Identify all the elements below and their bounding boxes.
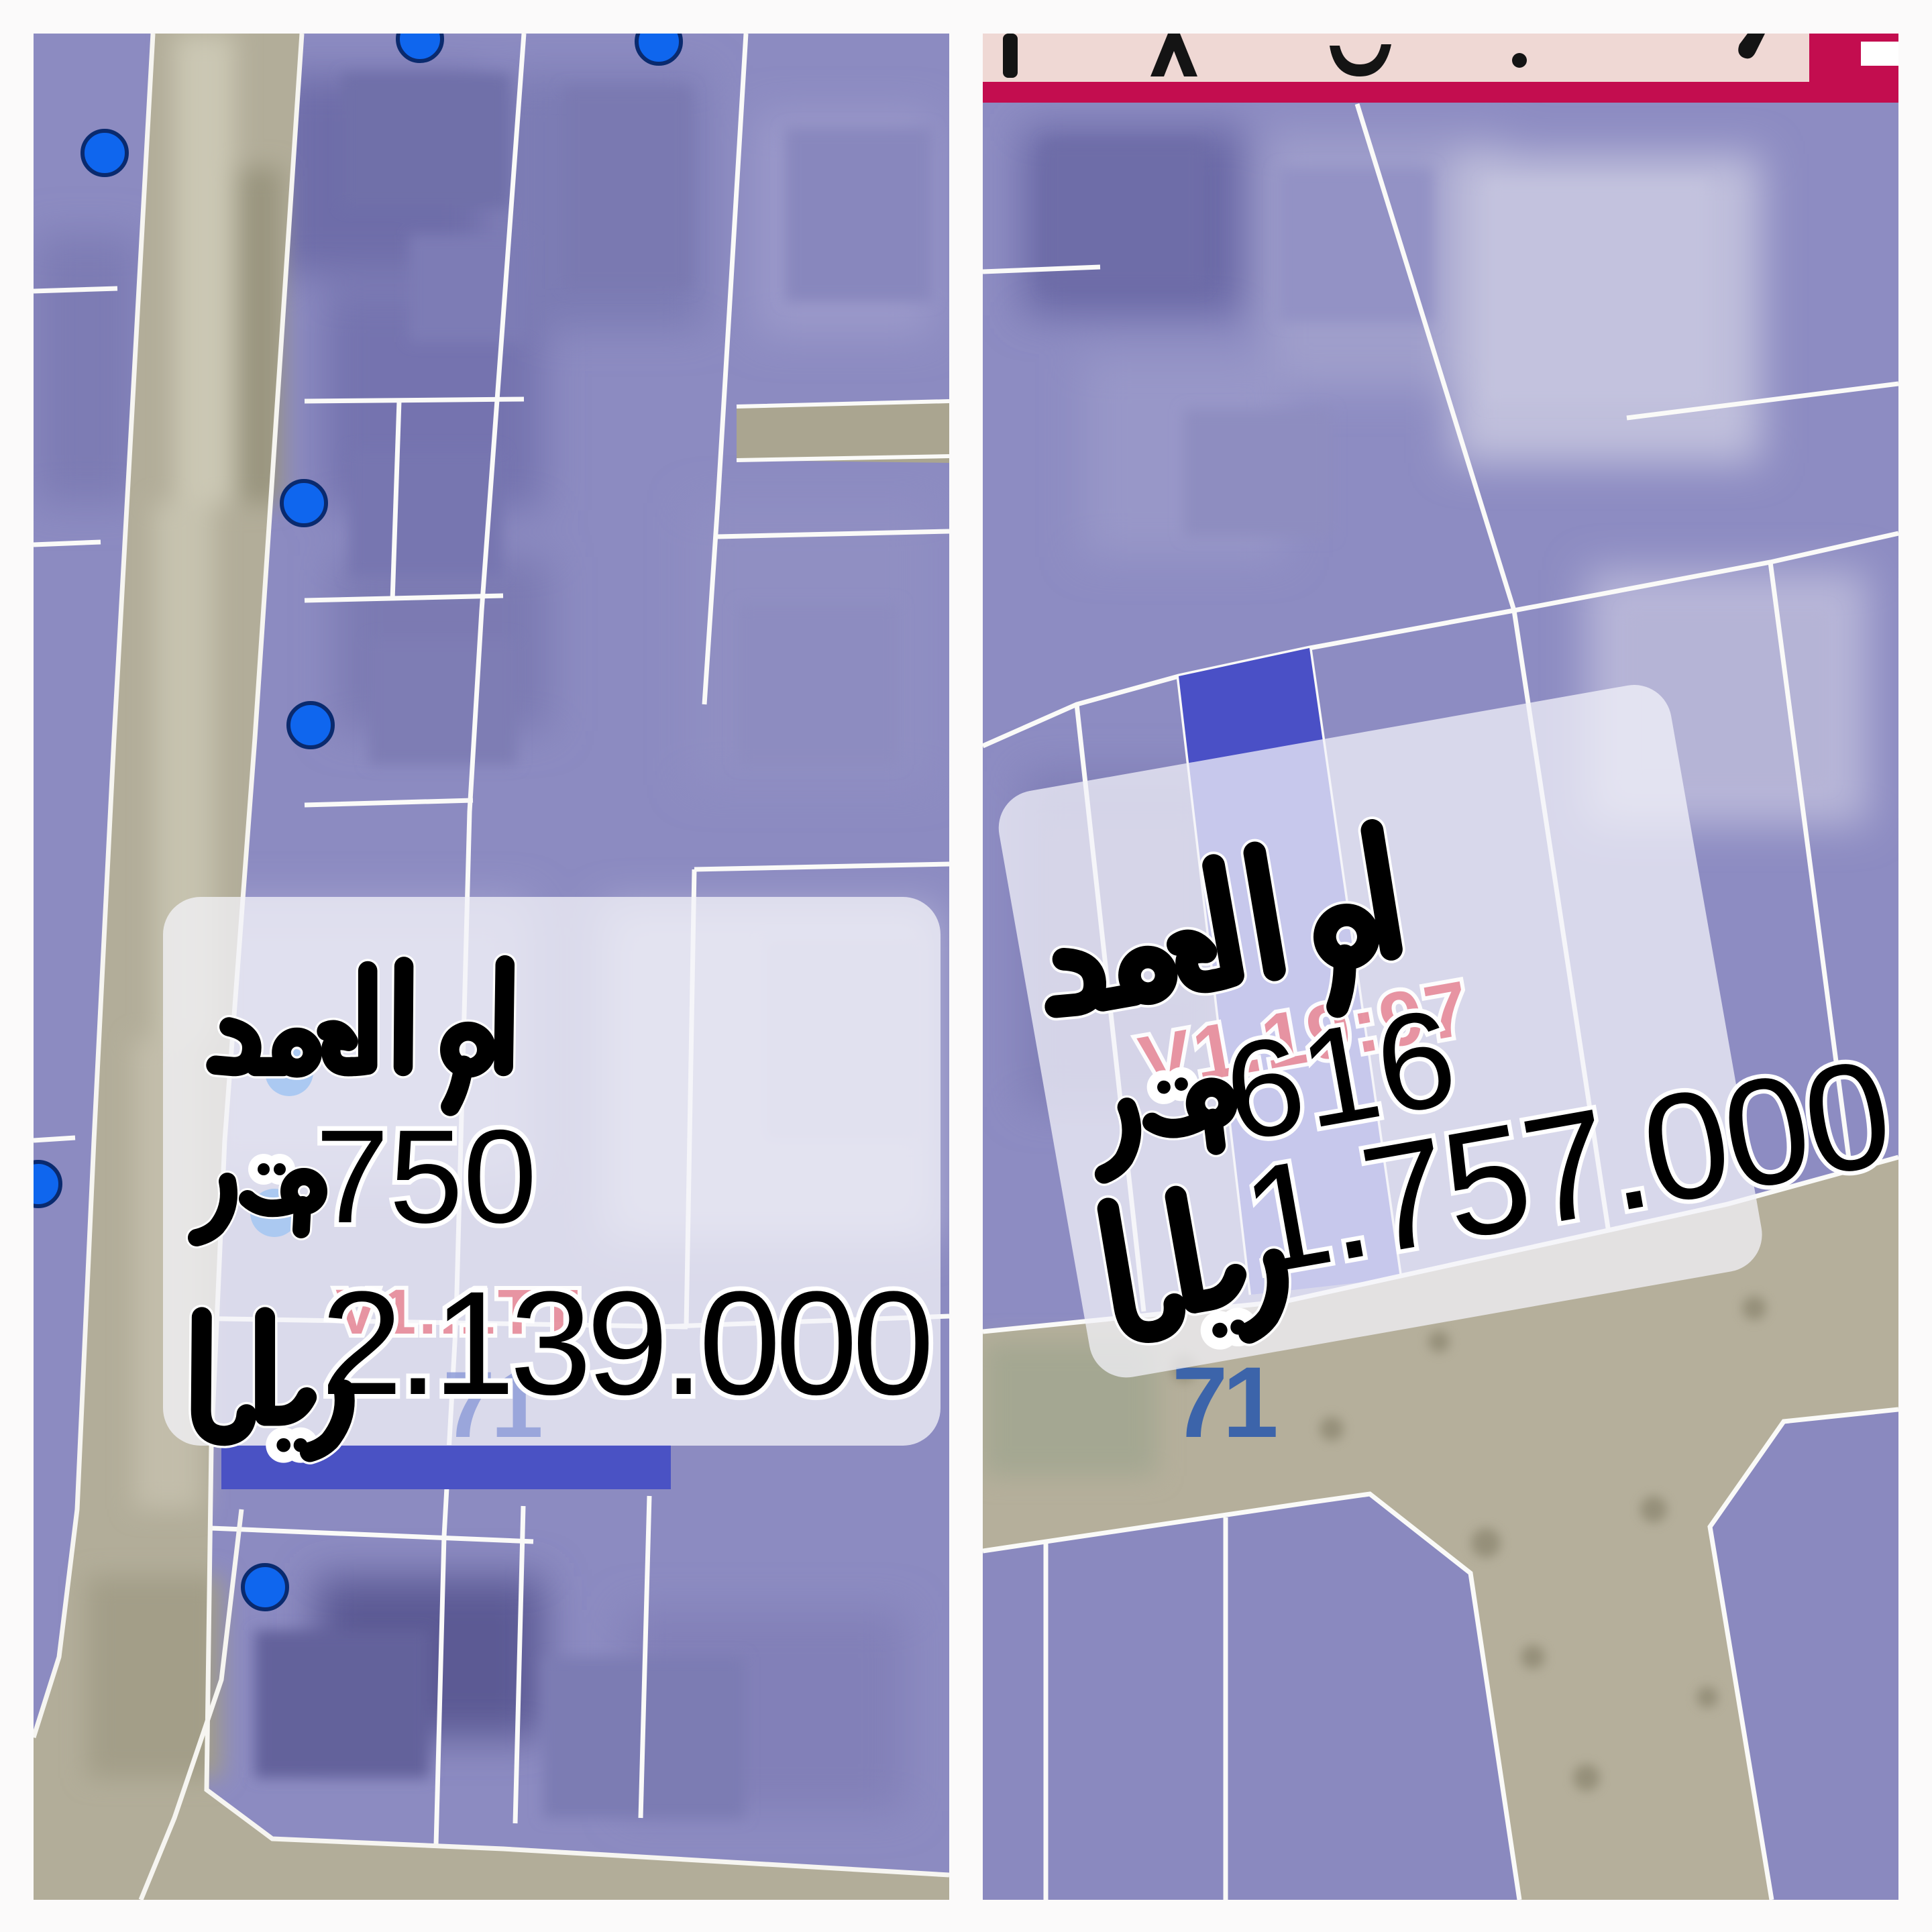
svg-text:2.139.000: 2.139.000 <box>321 1260 929 1426</box>
svg-text:750: 750 <box>315 1102 537 1250</box>
